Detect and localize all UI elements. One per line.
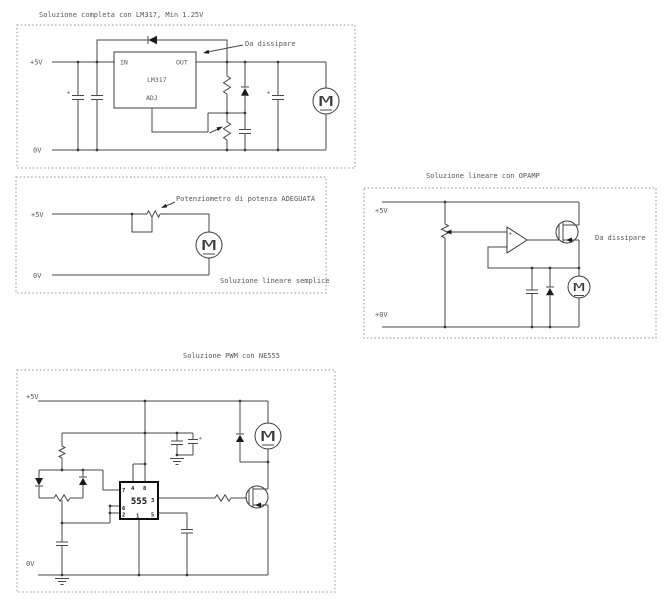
circuit-border bbox=[17, 370, 335, 592]
circuit-caption: Soluzione lineare semplice bbox=[220, 277, 330, 285]
rail-label-bottom: 0V bbox=[26, 560, 35, 568]
resistor-icon bbox=[59, 446, 65, 458]
potentiometer-icon bbox=[147, 211, 160, 217]
ic-pin-adj-label: ADJ bbox=[146, 94, 158, 102]
gate-resistor-icon bbox=[215, 495, 231, 501]
rail-label-bottom: 0V bbox=[33, 147, 42, 155]
diode-icon bbox=[241, 88, 249, 96]
rail-label-top: +5V bbox=[30, 59, 43, 67]
electrolytic-plus-sign: + bbox=[67, 91, 71, 97]
motor-letter: M bbox=[261, 430, 276, 445]
wires bbox=[52, 214, 215, 275]
potentiometer-icon bbox=[442, 224, 449, 238]
rail-label-bottom: 0V bbox=[33, 272, 42, 280]
circuit-lm317: Soluzione completa con LM317, Min 1.25V … bbox=[17, 11, 355, 168]
wires bbox=[382, 202, 584, 327]
annotation-dissipate: Da dissipare bbox=[595, 234, 646, 242]
annotation-arrowhead bbox=[161, 204, 167, 208]
ic-name-label: 555 bbox=[131, 497, 147, 507]
circuit-title: Soluzione lineare con OPAMP bbox=[426, 172, 540, 180]
schematic-canvas: Soluzione completa con LM317, Min 1.25V … bbox=[0, 0, 672, 610]
flyback-diode-icon bbox=[236, 435, 244, 442]
circuit-border bbox=[364, 188, 656, 338]
diode-icon bbox=[546, 288, 554, 295]
electrolytic-plus-sign: + bbox=[267, 91, 271, 97]
annotation-potentiometer: Potenziometro di potenza ADEGUATA bbox=[176, 195, 316, 203]
ic-pin-8: 8 bbox=[143, 486, 146, 492]
diode-icon bbox=[149, 36, 158, 44]
junction-dots bbox=[444, 201, 581, 329]
annotation-dissipate: Da dissipare bbox=[245, 40, 296, 48]
electrolytic-plus-sign: + bbox=[199, 436, 203, 442]
motor-letter: M bbox=[573, 281, 586, 294]
potentiometer-icon bbox=[224, 122, 231, 140]
circuit-pwm: Soluzione PWM con NE555 +5V 0V + 555 7 4… bbox=[17, 352, 335, 592]
annotation-arrow bbox=[166, 202, 175, 206]
rail-label-top: +5V bbox=[26, 393, 39, 401]
ic-name-label: LM317 bbox=[147, 76, 167, 84]
rail-label-top: +5V bbox=[375, 207, 388, 215]
potentiometer-wiper-arrowhead bbox=[217, 127, 223, 132]
junction-dot bbox=[131, 213, 134, 216]
circuit-opamp: Soluzione lineare con OPAMP +5V +0V + M … bbox=[364, 172, 656, 338]
ic-pin-in-label: IN bbox=[120, 59, 128, 67]
rail-label-top: +5V bbox=[31, 211, 44, 219]
motor-letter: M bbox=[319, 95, 334, 110]
diode-icon bbox=[35, 478, 43, 486]
ic-pin-2: 2 bbox=[122, 513, 125, 519]
ic-pin-7: 7 bbox=[122, 488, 125, 494]
ic-pin-5: 5 bbox=[151, 513, 154, 519]
circuit-title: Soluzione PWM con NE555 bbox=[183, 352, 280, 360]
annotation-arrow bbox=[208, 45, 244, 52]
circuit-linear-simple: +5V 0V M Potenziometro di potenza ADEGUA… bbox=[16, 177, 330, 293]
junction-dots bbox=[61, 400, 270, 577]
diode-icon bbox=[79, 478, 87, 485]
ic-pin-3: 3 bbox=[151, 498, 154, 504]
motor-letter: M bbox=[202, 239, 217, 254]
annotation-arrowhead bbox=[203, 50, 209, 54]
rail-label-bottom: +0V bbox=[375, 311, 388, 319]
circuit-title: Soluzione completa con LM317, Min 1.25V bbox=[39, 11, 204, 19]
resistor-icon bbox=[224, 76, 231, 94]
mosfet-icon bbox=[556, 221, 579, 243]
ic-pin-out-label: OUT bbox=[176, 59, 188, 67]
